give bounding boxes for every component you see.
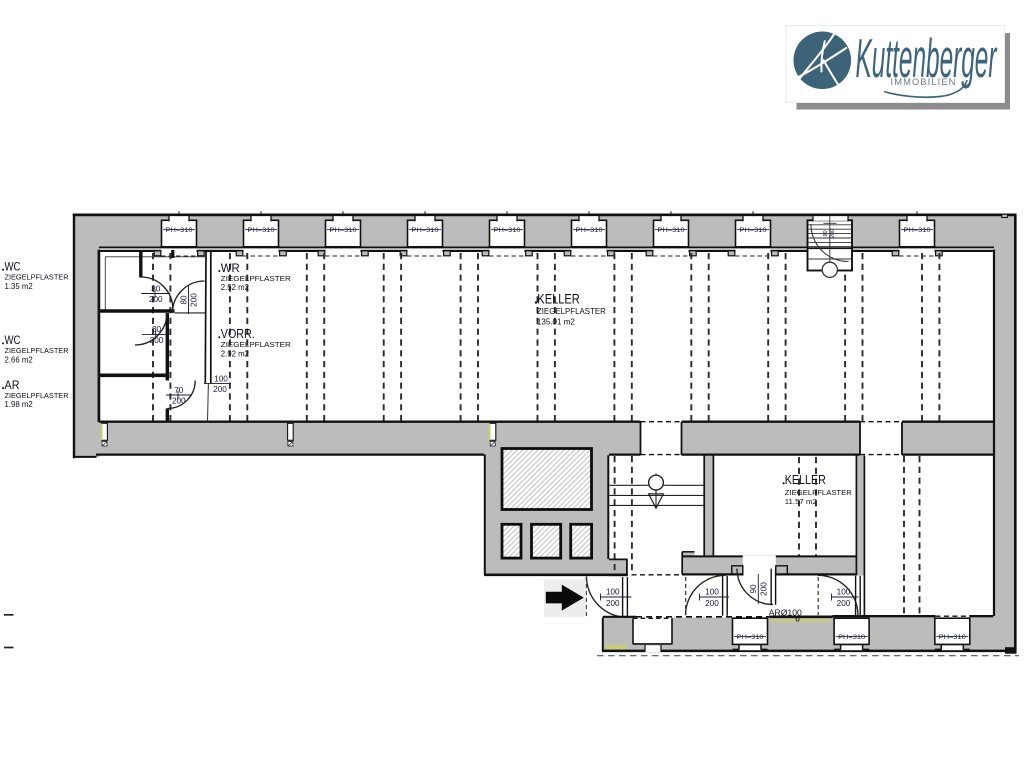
svg-text:ZIEGELPFLASTER: ZIEGELPFLASTER bbox=[221, 274, 291, 283]
svg-text:PH=310: PH=310 bbox=[494, 227, 522, 234]
svg-text:1.98 m2: 1.98 m2 bbox=[5, 400, 33, 409]
svg-text:PH=310: PH=310 bbox=[740, 227, 768, 234]
svg-text:11.57 m2: 11.57 m2 bbox=[785, 497, 817, 506]
svg-text:PH=310: PH=310 bbox=[248, 227, 276, 234]
svg-text:IMMOBILIEN: IMMOBILIEN bbox=[891, 77, 957, 87]
svg-text:135.01 m2: 135.01 m2 bbox=[537, 317, 576, 326]
svg-text:200: 200 bbox=[606, 599, 620, 608]
svg-text:200: 200 bbox=[190, 293, 199, 307]
svg-text:PH=310: PH=310 bbox=[939, 634, 967, 641]
svg-text:ZIEGELPFLASTER: ZIEGELPFLASTER bbox=[221, 340, 291, 349]
svg-text:100: 100 bbox=[705, 588, 719, 597]
svg-text:ZIEGELPFLASTER: ZIEGELPFLASTER bbox=[537, 307, 606, 316]
svg-text:2.66 m2: 2.66 m2 bbox=[5, 356, 33, 365]
svg-text:200: 200 bbox=[150, 336, 164, 345]
svg-text:ZIEGELPFLASTER: ZIEGELPFLASTER bbox=[5, 346, 69, 355]
svg-text:2.52 m2: 2.52 m2 bbox=[221, 283, 249, 292]
svg-text:WC: WC bbox=[5, 260, 21, 274]
svg-text:200: 200 bbox=[759, 582, 768, 596]
svg-text:ARØ100: ARØ100 bbox=[769, 607, 802, 617]
svg-text:PH=310: PH=310 bbox=[330, 227, 358, 234]
svg-text:200: 200 bbox=[830, 229, 836, 238]
svg-text:90: 90 bbox=[823, 230, 829, 236]
svg-text:KELLER: KELLER bbox=[785, 473, 826, 487]
svg-text:90: 90 bbox=[749, 584, 758, 594]
svg-text:PH=310: PH=310 bbox=[166, 227, 194, 234]
svg-text:200: 200 bbox=[213, 385, 227, 394]
svg-text:WC: WC bbox=[5, 333, 21, 347]
svg-text:80: 80 bbox=[179, 295, 188, 305]
svg-text:2.92 m2: 2.92 m2 bbox=[221, 349, 249, 358]
svg-text:100: 100 bbox=[214, 374, 228, 383]
svg-text:80: 80 bbox=[151, 284, 161, 293]
svg-text:200: 200 bbox=[172, 396, 186, 405]
svg-text:PH=310: PH=310 bbox=[904, 227, 932, 234]
svg-text:200: 200 bbox=[837, 599, 851, 608]
svg-text:PH=310: PH=310 bbox=[658, 227, 686, 234]
svg-text:KELLER: KELLER bbox=[537, 291, 580, 306]
svg-text:ZIEGELPFLASTER: ZIEGELPFLASTER bbox=[785, 488, 853, 497]
svg-text:ZIEGELPFLASTER: ZIEGELPFLASTER bbox=[5, 391, 69, 400]
svg-text:200: 200 bbox=[705, 599, 719, 608]
svg-text:200: 200 bbox=[149, 295, 163, 304]
svg-text:70: 70 bbox=[174, 386, 184, 395]
svg-text:PH=310: PH=310 bbox=[838, 634, 866, 641]
svg-text:PH=310: PH=310 bbox=[737, 634, 765, 641]
svg-text:PH=310: PH=310 bbox=[576, 227, 604, 234]
svg-text:AR: AR bbox=[5, 378, 20, 392]
svg-text:VORR.: VORR. bbox=[221, 327, 255, 341]
svg-text:PH=310: PH=310 bbox=[412, 227, 440, 234]
svg-text:80: 80 bbox=[152, 325, 162, 334]
svg-text:WR: WR bbox=[221, 261, 240, 275]
svg-text:100: 100 bbox=[606, 588, 620, 597]
svg-text:ZIEGELPFLASTER: ZIEGELPFLASTER bbox=[5, 273, 69, 282]
svg-text:1.35 m2: 1.35 m2 bbox=[5, 282, 33, 291]
svg-text:100: 100 bbox=[837, 588, 851, 597]
